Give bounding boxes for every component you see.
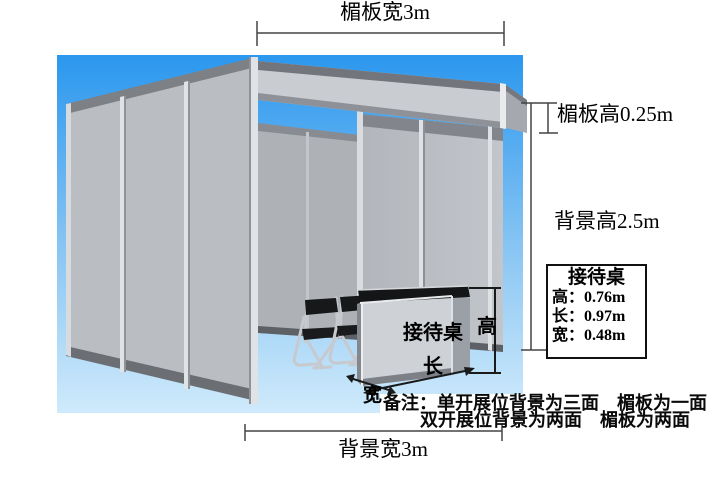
background-height-label: 背景高2.5m [554, 210, 660, 233]
left-wall [66, 57, 258, 404]
background-width-label: 背景宽3m [303, 438, 463, 461]
info-box: 接待桌 高：0.76m 长：0.97m 宽：0.48m [546, 264, 647, 359]
desk-front-label: 接待桌 [403, 322, 463, 344]
notes-line-2: 双开展位背景为两面 楣板为两面 [420, 411, 690, 431]
info-box-row-height: 高：0.76m [548, 288, 645, 307]
desk-height-label: 高 [477, 316, 497, 338]
booth-diagram: 楣板宽3m 楣板高0.25m 背景高2.5m 背景宽3m 接待桌 高 长 宽 接… [0, 0, 712, 494]
fascia-height-label: 楣板高0.25m [557, 103, 673, 126]
info-box-title: 接待桌 [548, 267, 645, 288]
info-box-row-width: 宽：0.48m [548, 326, 645, 345]
desk-length-label: 长 [423, 356, 443, 378]
background-height-dimension-line [521, 103, 547, 350]
fascia-width-label: 楣板宽3m [305, 1, 465, 24]
fascia-width-dimension-line [257, 21, 504, 46]
desk-width-label: 宽 [363, 386, 382, 407]
info-box-row-length: 长：0.97m [548, 307, 645, 326]
